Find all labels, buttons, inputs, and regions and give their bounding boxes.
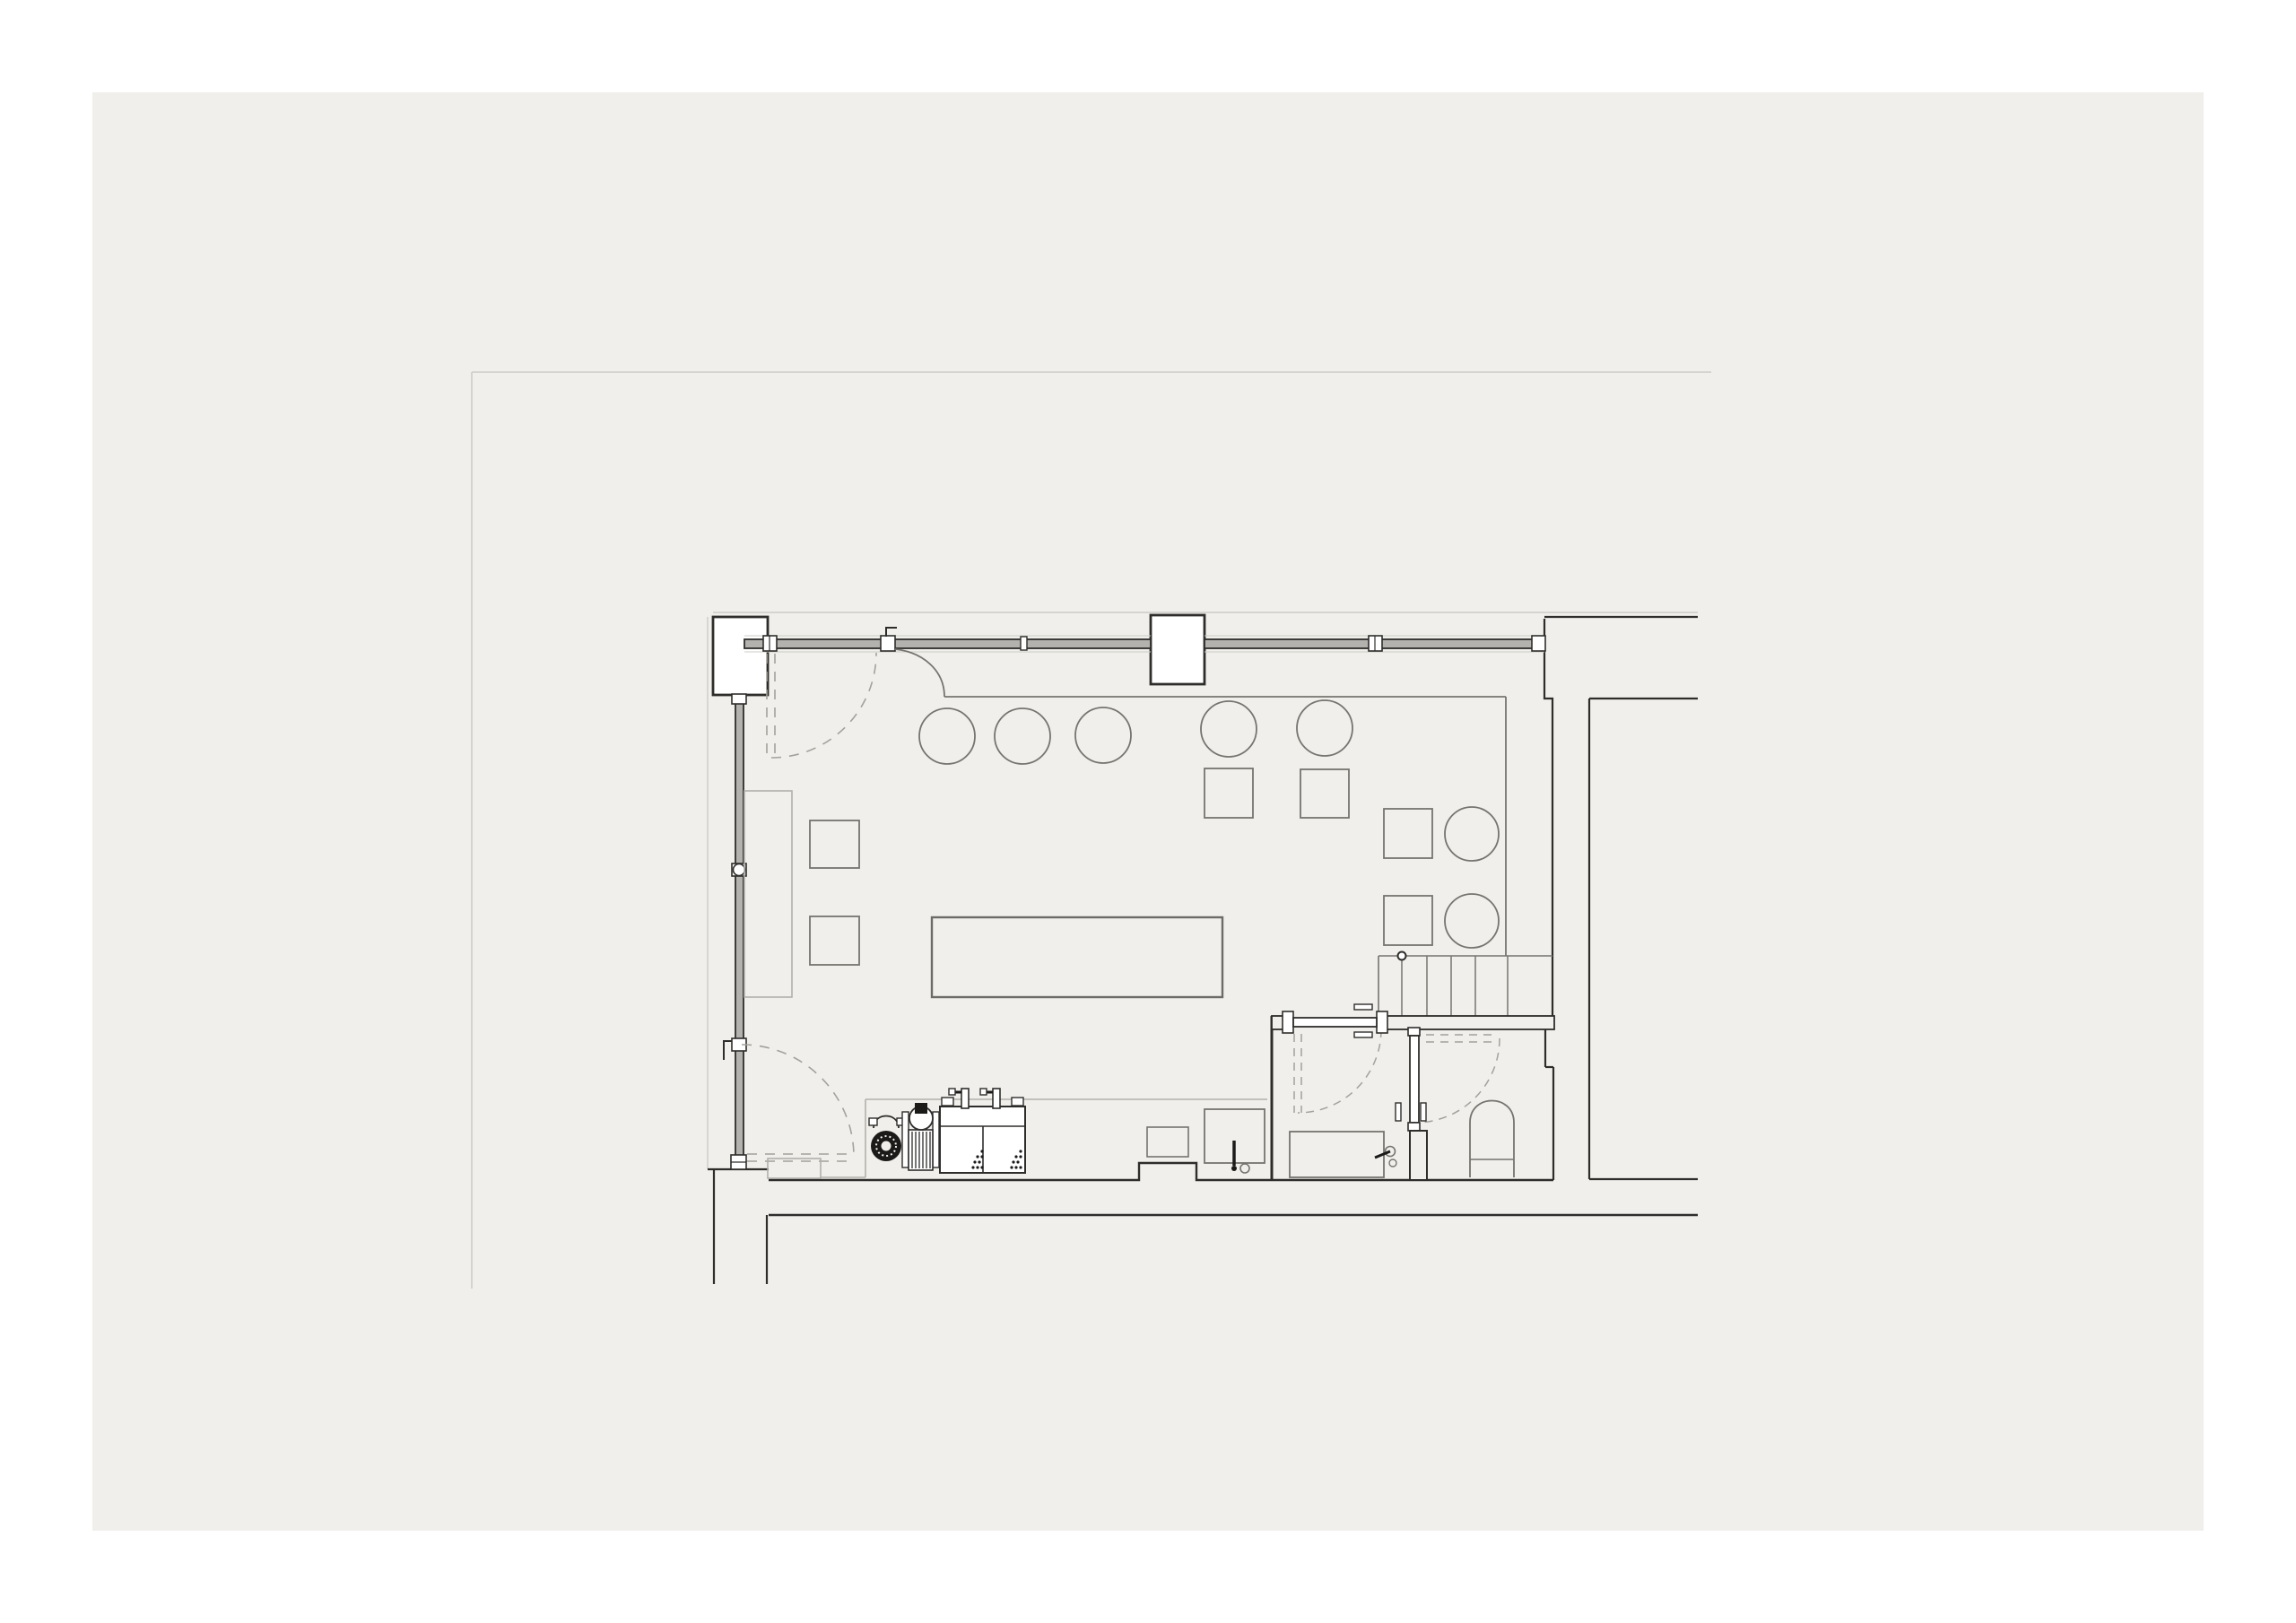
paper-canvas bbox=[92, 92, 2204, 1531]
dot bbox=[1019, 1150, 1022, 1152]
mullion bbox=[1021, 637, 1027, 650]
wc-door-jamb bbox=[1377, 1011, 1387, 1033]
blender-cap bbox=[915, 1103, 927, 1114]
glazing-band-left bbox=[744, 639, 1151, 648]
dot bbox=[1019, 1166, 1022, 1168]
wc-door-handle bbox=[1354, 1032, 1372, 1037]
floor-plan bbox=[0, 0, 2296, 1623]
door-hinge-mullion bbox=[881, 636, 895, 651]
wc2-door-handle bbox=[1421, 1103, 1426, 1121]
dot bbox=[1019, 1155, 1022, 1158]
wc2-door-jamb bbox=[1408, 1123, 1420, 1131]
wc-door-leaf bbox=[1293, 1018, 1377, 1027]
stair-start-marker bbox=[1398, 952, 1406, 960]
beer-tap bbox=[993, 1089, 1000, 1108]
dot bbox=[980, 1150, 983, 1152]
dot bbox=[971, 1166, 974, 1168]
dot bbox=[978, 1160, 980, 1163]
blender-side bbox=[933, 1112, 939, 1167]
dot bbox=[980, 1155, 983, 1158]
wc-band-right bbox=[1378, 1016, 1554, 1029]
wc-partition bbox=[1410, 1131, 1427, 1180]
sink-faucet-base bbox=[1231, 1166, 1237, 1171]
mullion-end bbox=[1532, 636, 1545, 651]
blender-side bbox=[902, 1112, 909, 1167]
beer-tap-knob bbox=[949, 1089, 955, 1095]
drawing-page bbox=[0, 0, 2296, 1623]
mullion bbox=[732, 694, 746, 704]
wc2-door-leaf bbox=[1410, 1036, 1419, 1123]
keg-fridge-foot bbox=[1012, 1098, 1023, 1106]
dot bbox=[973, 1160, 976, 1163]
wc-door-jamb bbox=[1283, 1011, 1293, 1033]
dot bbox=[976, 1155, 978, 1158]
coffee-grinder-hole bbox=[882, 1141, 891, 1151]
beer-tap bbox=[961, 1089, 969, 1108]
left-pier bbox=[713, 617, 768, 695]
dot bbox=[980, 1166, 983, 1168]
beer-tap-knob bbox=[980, 1089, 987, 1095]
wc2-door-jamb bbox=[1408, 1028, 1420, 1036]
mullion-node bbox=[734, 864, 745, 876]
dot bbox=[1016, 1160, 1019, 1163]
dot bbox=[1010, 1166, 1013, 1168]
wc-door-handle bbox=[1354, 1004, 1372, 1010]
dot bbox=[976, 1166, 978, 1168]
wc2-door-handle bbox=[1396, 1103, 1401, 1121]
grinder-foot bbox=[869, 1118, 877, 1125]
mid-pier bbox=[1151, 615, 1205, 684]
dot bbox=[1012, 1160, 1014, 1163]
dot bbox=[1014, 1166, 1017, 1168]
dot bbox=[1014, 1155, 1017, 1158]
keg-fridge-foot bbox=[942, 1098, 953, 1106]
glazing-band-west bbox=[735, 702, 744, 1168]
